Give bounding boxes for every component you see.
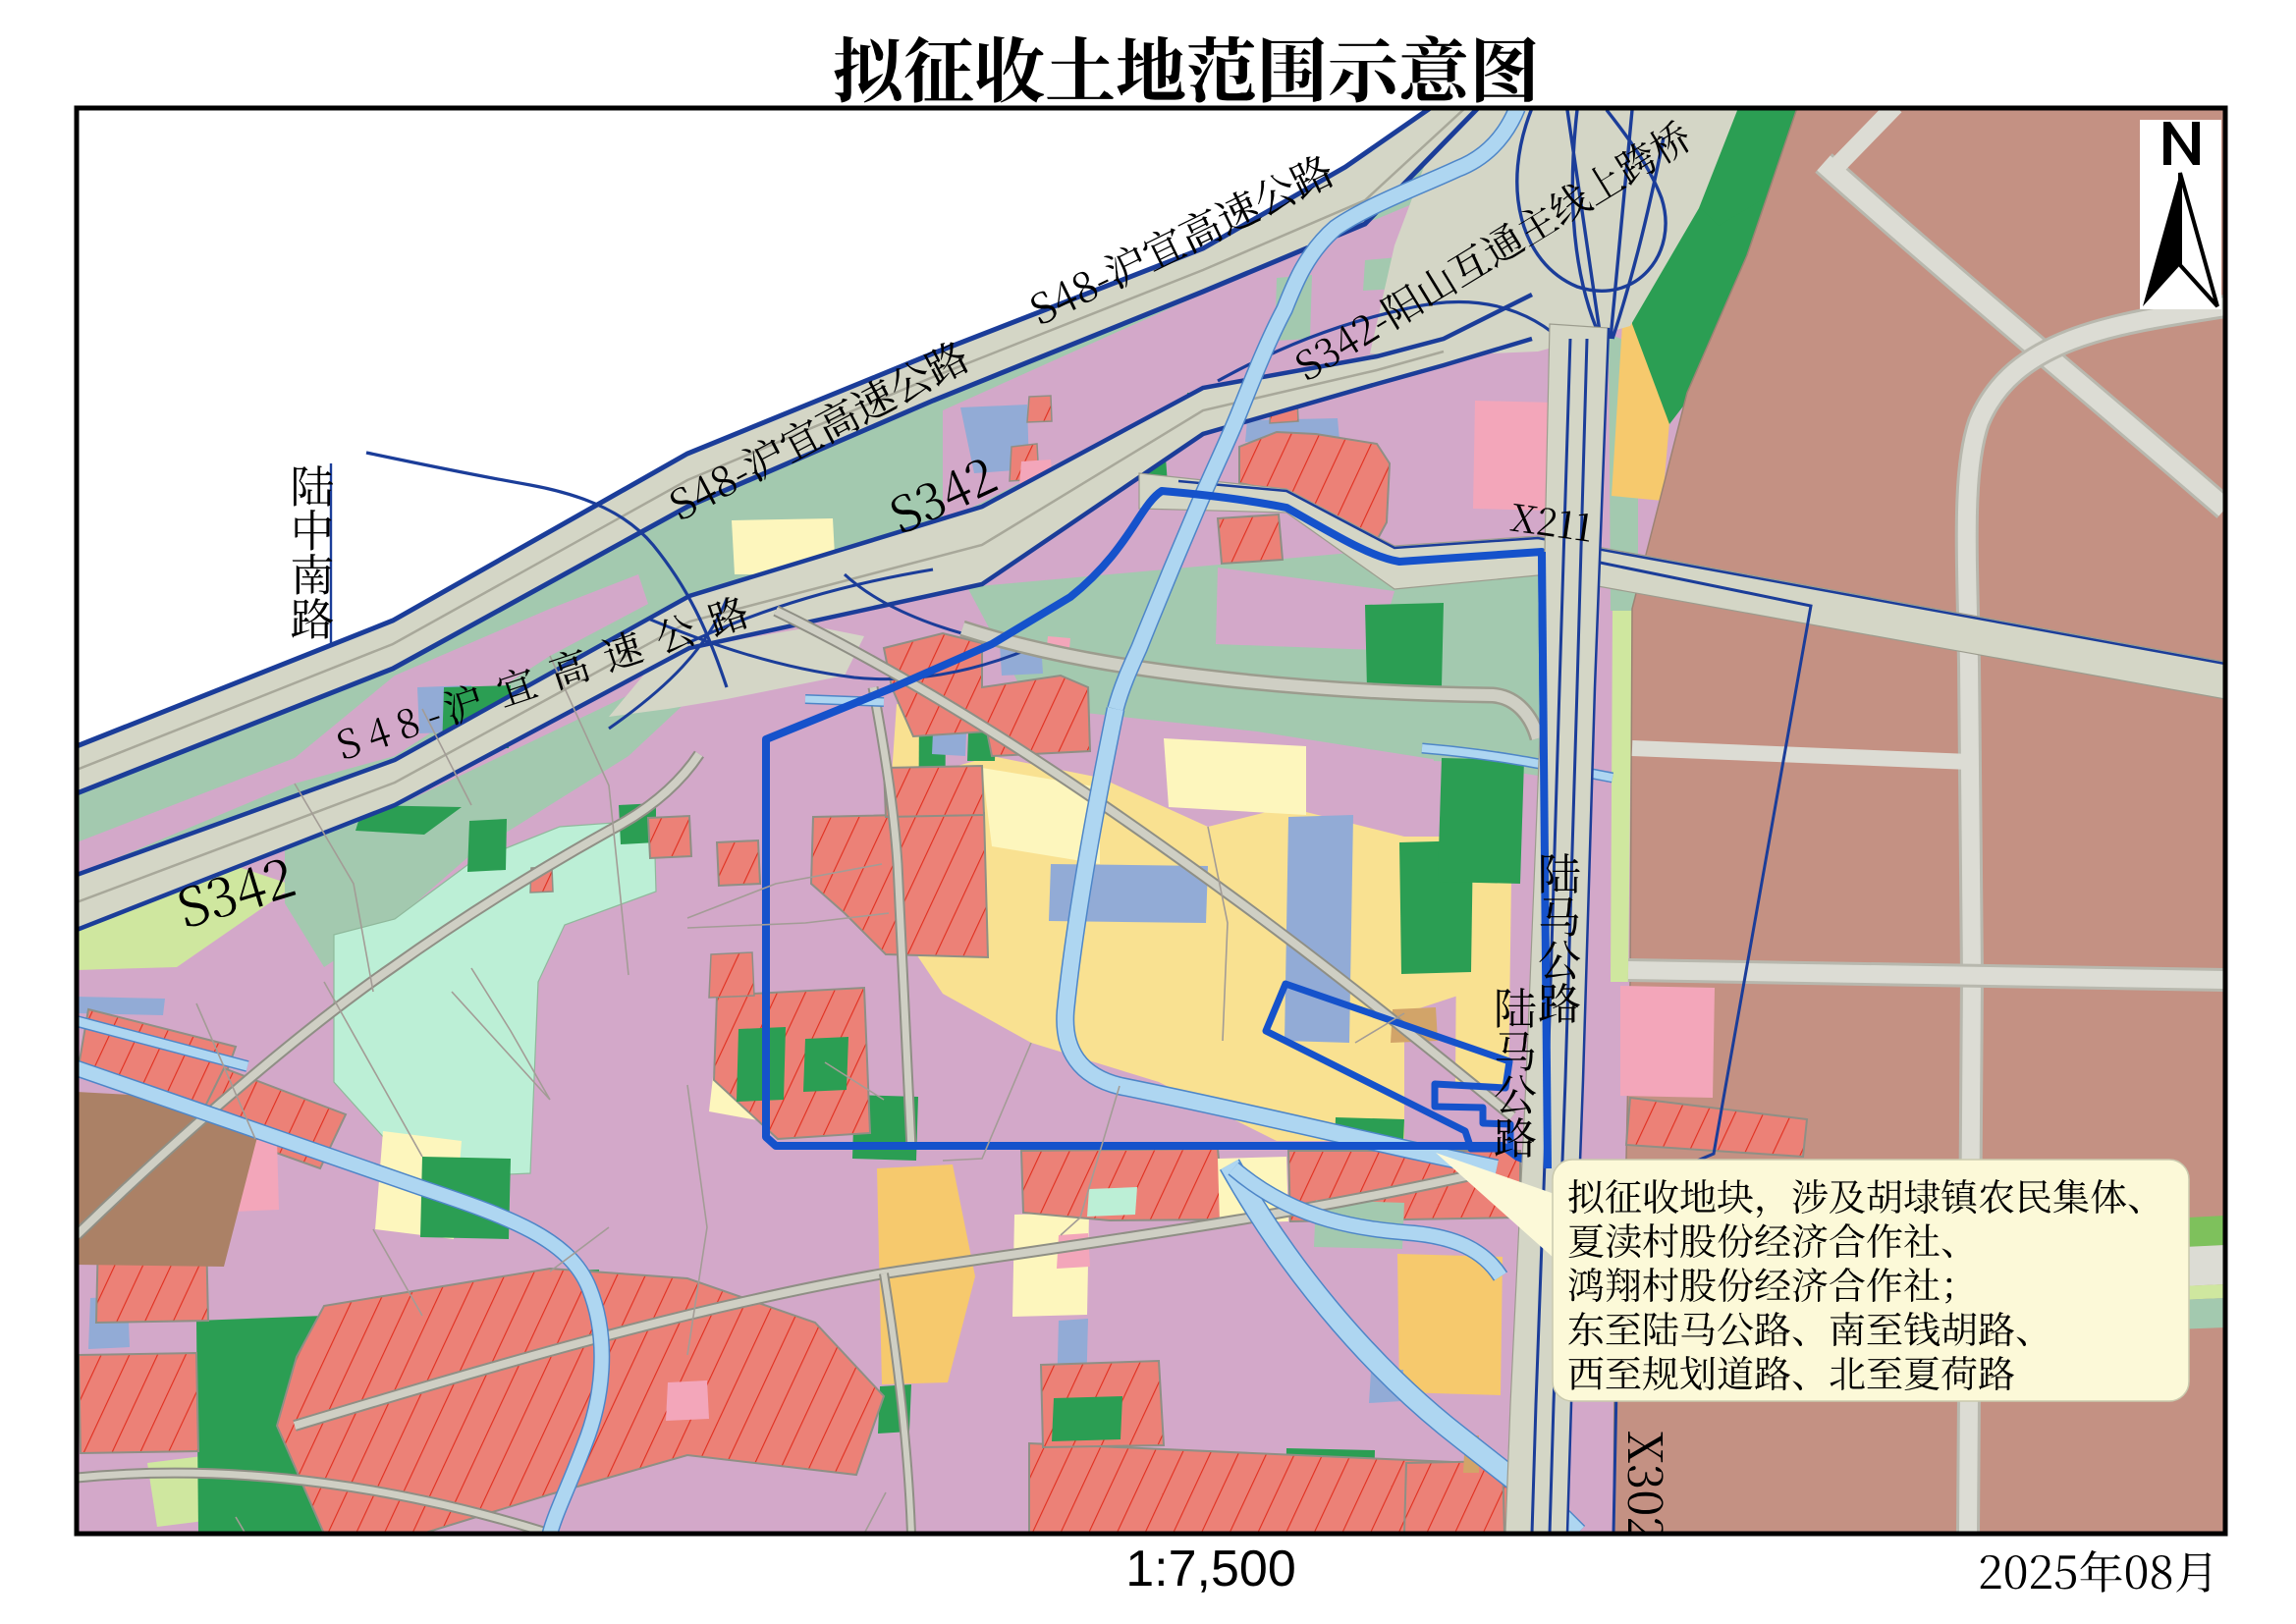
svg-text:1:7,500: 1:7,500 <box>1125 1541 1296 1597</box>
